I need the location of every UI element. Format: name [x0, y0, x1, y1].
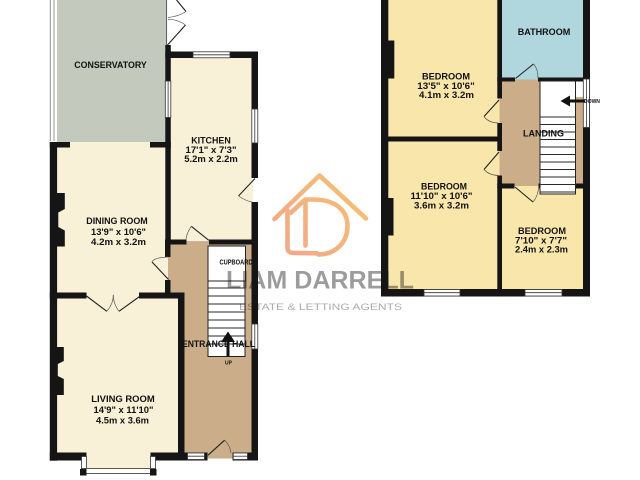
- svg-text:DINING ROOM: DINING ROOM: [86, 216, 148, 227]
- svg-text:4.5m x 3.6m: 4.5m x 3.6m: [96, 416, 149, 427]
- svg-text:4.2m x 3.2m: 4.2m x 3.2m: [91, 237, 146, 248]
- svg-text:BATHROOM: BATHROOM: [518, 27, 571, 38]
- svg-text:ENTRANCE HALL: ENTRANCE HALL: [182, 339, 255, 350]
- svg-text:LIVING ROOM: LIVING ROOM: [91, 394, 155, 405]
- svg-text:CUPBOARD: CUPBOARD: [220, 258, 253, 267]
- svg-text:DOWN: DOWN: [584, 99, 600, 105]
- svg-text:4.1m x 3.2m: 4.1m x 3.2m: [419, 90, 474, 101]
- svg-text:2.4m x 2.3m: 2.4m x 2.3m: [515, 245, 568, 256]
- svg-text:LANDING: LANDING: [523, 129, 564, 140]
- svg-text:3.6m x 3.2m: 3.6m x 3.2m: [414, 201, 469, 212]
- svg-text:ESTATE & LETTING AGENTS: ESTATE & LETTING AGENTS: [239, 302, 402, 313]
- svg-text:UP: UP: [225, 361, 233, 367]
- svg-text:5.2m x 2.2m: 5.2m x 2.2m: [184, 154, 238, 165]
- svg-text:CONSERVATORY: CONSERVATORY: [74, 60, 147, 71]
- svg-text:14'9" x 11'10": 14'9" x 11'10": [94, 405, 154, 416]
